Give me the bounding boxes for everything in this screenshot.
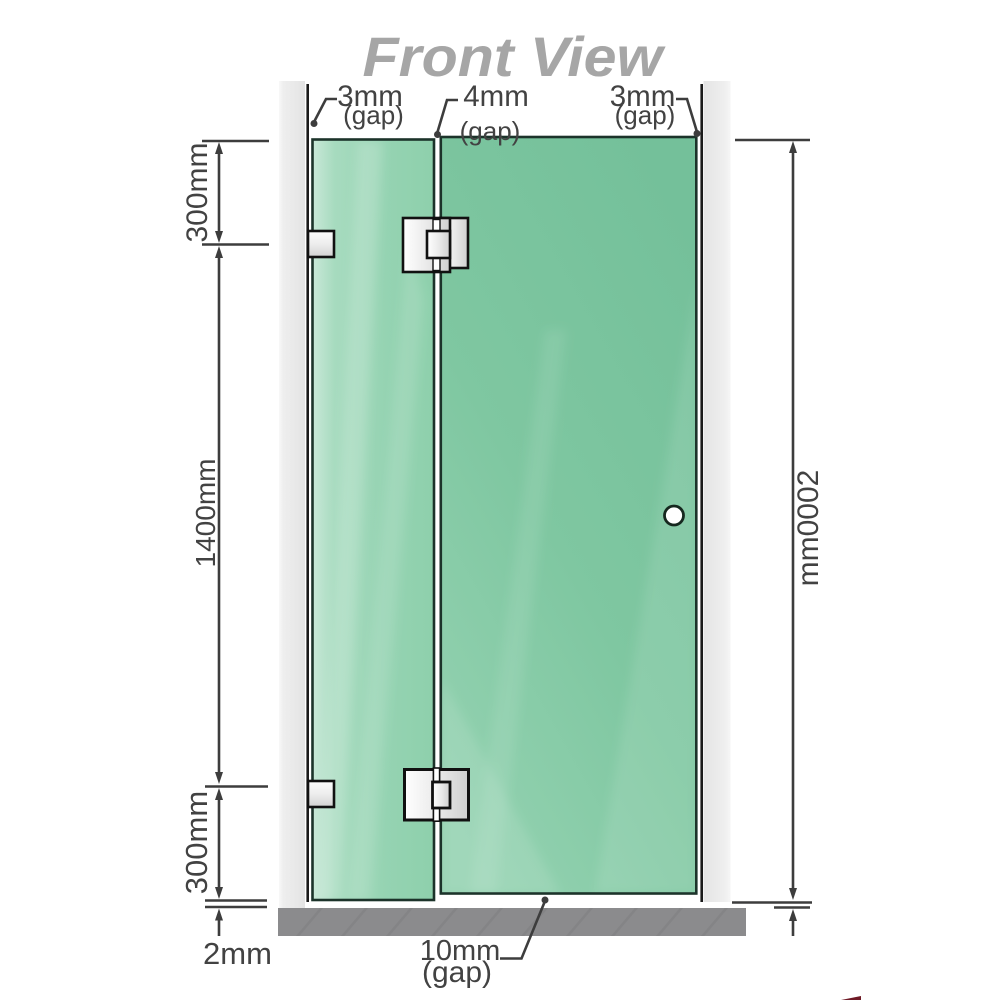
svg-text:300mm: 300mm <box>181 142 214 242</box>
svg-text:4mm: 4mm <box>463 80 529 113</box>
svg-text:1400mm: 1400mm <box>190 459 221 568</box>
svg-text:Front View: Front View <box>363 25 667 88</box>
svg-text:(gap): (gap) <box>460 116 521 146</box>
svg-text:mm0002: mm0002 <box>792 470 825 587</box>
svg-text:(gap): (gap) <box>615 100 676 130</box>
svg-text:(gap): (gap) <box>422 956 492 989</box>
svg-text:(gap): (gap) <box>343 100 404 130</box>
svg-text:2mm: 2mm <box>203 936 272 971</box>
svg-text:300mm: 300mm <box>179 791 214 894</box>
